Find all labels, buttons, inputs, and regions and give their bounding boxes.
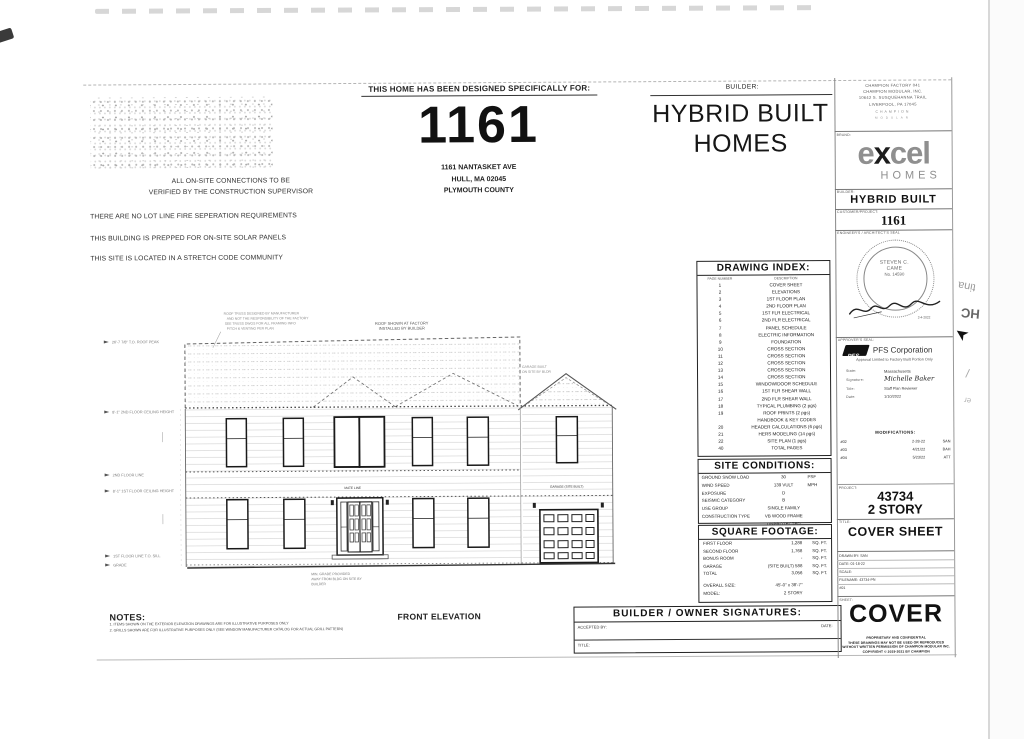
garage-door — [533, 502, 604, 562]
roof-note: ROOF SHOWN AT FACTORY INSTALLED BY BUILD… — [375, 321, 429, 331]
builder-label: BUILDER: — [653, 83, 831, 91]
filename-label: FILENAME: — [839, 578, 858, 582]
dim-label: 8'-1" 2ND FLOOR CEILING HEIGHT — [112, 410, 175, 414]
drawn-by-value: SAN — [860, 554, 867, 558]
tb-date-label: DATE: — [839, 562, 849, 566]
porch-light-right — [386, 500, 389, 505]
site-note-1: ALL ON-SITE CONNECTIONS TO BE — [91, 177, 371, 186]
porch-light-left — [331, 500, 334, 505]
logo-excel-text: excel — [857, 135, 930, 170]
garage-gable — [524, 377, 610, 406]
project-model: 2 STORY — [837, 501, 954, 517]
drawing-index-title: DRAWING INDEX: — [697, 261, 829, 276]
square-footage-title: SQUARE FOOTAGE: — [699, 525, 831, 540]
mod-date: 5/23/22 — [865, 453, 926, 461]
bleed-glyph-2: HC — [960, 305, 980, 322]
square-footage-rows: FIRST FLOOR 1,288 SQ. FT. SECOND FLOOR 1… — [699, 539, 831, 578]
garage-note: GARAGE BUILT ON SITE BY BLDR — [522, 365, 552, 374]
dim-label: 26'-7 7/8" T.O. ROOF PEAK — [112, 340, 160, 344]
mod-id: #02 — [840, 438, 864, 446]
approver-signature: Michelle Baker — [884, 374, 934, 382]
site-note-5: THIS SITE IS LOCATED IN A STRETCH CODE C… — [90, 254, 283, 262]
sheet-name: COVER — [837, 599, 954, 629]
roof-texture — [185, 340, 520, 408]
modifications-rows: #02 2-28-22 SAN #03 4/21/22 BAH #04 5/23… — [840, 437, 950, 462]
garage-light-left — [533, 503, 536, 508]
builder-name-line2: HOMES — [641, 128, 841, 159]
filename-row: FILENAME: 43734-PN — [839, 578, 875, 582]
dim-label: 2ND FLOOR LINE — [113, 473, 145, 477]
pfs-note: Approval Limited to Factory Built Portio… — [836, 357, 953, 362]
approver-title: Staff Plan Reviewer — [884, 387, 917, 391]
modifications-header: MODIFICATIONS: — [860, 429, 930, 434]
logo-homes-text: HOMES — [839, 169, 949, 182]
mod-id: #03 — [840, 446, 864, 454]
roof-annotation-line: PITCH & VENTING PER PLAN — [227, 326, 275, 330]
site-note-2: VERIFIED BY THE CONSTRUCTION SUPERVISOR — [91, 188, 371, 197]
tb-date-value: 01-18-22 — [851, 562, 865, 566]
drawing-index-row: 40 TOTAL PAGES — [698, 444, 830, 452]
index-row-number: 40 — [698, 445, 743, 452]
roof-note-line: INSTALLED BY BUILDER — [379, 326, 425, 331]
entry-door — [331, 498, 389, 559]
engineer-seal-label: ENGINEER'S / ARCHITECT'S SEAL — [837, 231, 900, 235]
signatures-title: BUILDER / OWNER SIGNATURES: — [574, 606, 840, 623]
drawn-by-row: DRAWN BY: SAN — [839, 554, 867, 558]
proprietary-notice: PROPRIETARY AND CONFIDENTIALTHESE DRAWIN… — [840, 635, 953, 655]
signatures-box: BUILDER / OWNER SIGNATURES: ACCEPTED BY:… — [573, 605, 841, 654]
site-note-3: THERE ARE NO LOT LINE FIRE SEPERATION RE… — [90, 212, 297, 220]
model-value: 2 STORY — [750, 589, 802, 597]
notes-items: 1. ITEMS SHOWN ON THE EXTERIOR ELEVATION… — [110, 620, 510, 634]
model-row: MODEL: 2 STORY — [699, 589, 831, 597]
builder-name-line1: HYBRID BUILT — [640, 98, 840, 129]
factory-brand-modular: MODULAR — [836, 115, 949, 120]
elevation-caption: FRONT ELEVATION — [397, 611, 481, 622]
condition-unit: PSF — [807, 473, 827, 481]
builder-name: HYBRID BUILT HOMES — [640, 98, 840, 159]
area-value: 3,056 — [750, 570, 802, 578]
project-number-large: 1161 — [378, 97, 578, 154]
mod-initials: SAN — [925, 437, 950, 445]
builder-underline — [650, 94, 832, 97]
dim-label: 1ST FLOOR LINE T.O. SILL — [113, 554, 160, 558]
sheet-bottom-border — [97, 654, 957, 660]
title-block-right-border — [951, 77, 956, 657]
drawing-sheet: ALL ON-SITE CONNECTIONS TO BE VERIFIED B… — [0, 0, 1024, 739]
excel-homes-logo: excel HOMES — [839, 136, 949, 182]
seal-date: 2-4-2022 — [918, 315, 931, 319]
sheet-title-label: TITLE: — [839, 520, 851, 524]
grade-note: MIN. GRADE PROVIDED AWAY FROM BLDG ON SI… — [311, 572, 362, 586]
area-label: TOTAL — [703, 570, 750, 578]
garage-section-label: GARAGE (SITE BUILT) — [550, 485, 583, 489]
condition-unit — [808, 504, 828, 512]
site-conditions-box: SITE CONDITIONS: GROUND SNOW LOAD 30 PSF… — [698, 458, 832, 524]
pfs-logo: PFS — [842, 345, 870, 356]
area-unit: SQ. FT. — [802, 569, 827, 577]
grade-note-line: MIN. GRADE PROVIDED — [311, 572, 350, 576]
drawing-index-rows: 1 COVER SHEET 2 ELEVATIONS 3 1ST FLOOR P… — [697, 281, 830, 452]
area-unit: SQ. FT. — [802, 562, 827, 570]
drawn-by-label: DRAWN BY: — [839, 554, 859, 558]
roof-annotation-line: SEE TRUSS DWGS FOR ALL FRAMING INFO — [225, 321, 296, 325]
signature-title-label: TITLE: — [578, 643, 590, 648]
condition-unit — [808, 496, 828, 504]
site-conditions-rows: GROUND SNOW LOAD 30 PSF WIND SPEED 139 V… — [699, 473, 831, 528]
garage-note-line: ON SITE BY BLDR — [522, 370, 552, 374]
state-value: Massachusetts — [884, 369, 911, 374]
model-label: MODEL: — [703, 589, 750, 597]
scanned-cover-sheet: ALL ON-SITE CONNECTIONS TO BE VERIFIED B… — [0, 0, 1024, 739]
sheet-title: COVER SHEET — [837, 524, 954, 539]
factory-info-line: LIVERPOOL, PA 17045 — [836, 101, 949, 108]
rev-row: #01 — [839, 586, 845, 590]
project-address: 1161 NANTASKET AVEHULL, MA 02045PLYMOUTH… — [379, 162, 579, 198]
square-footage-box: SQUARE FOOTAGE: FIRST FLOOR 1,288 SQ. FT… — [698, 524, 832, 603]
signature-date-label: DATE: — [821, 623, 833, 628]
area-unit: SQ. FT. — [802, 547, 827, 555]
front-elevation-drawing: ROOF TRUSS DESIGNED BY MANUFACTURER AND … — [100, 299, 682, 603]
mod-initials: BAH — [925, 445, 950, 453]
grade-note-line: BUILDER — [311, 582, 326, 586]
state-label: State: — [846, 369, 856, 373]
factory-info: CHAMPION FACTORY 041CHAMPION MODULAR, IN… — [836, 82, 949, 108]
factory-brand-champion: CHAMPION — [836, 109, 949, 114]
garage-note-line: GARAGE BUILT — [522, 365, 547, 369]
area-unit: SQ. FT. — [802, 539, 827, 547]
site-note-4: THIS BUILDING IS PREPPED FOR ON-SITE SOL… — [90, 234, 286, 242]
area-unit: SQ. FT. — [802, 554, 827, 562]
dim-label: GRADE — [113, 563, 127, 567]
approver-signature-label: Signature: — [846, 378, 864, 382]
filename-value: 43734-PN — [859, 578, 875, 582]
approver-date: 1/10/2022 — [884, 395, 901, 399]
seal-number: No. 14590 — [859, 271, 929, 276]
roof-annotation-line: ROOF TRUSS DESIGNED BY MANUFACTURER — [224, 311, 300, 315]
square-footage-row: TOTAL 3,056 SQ. FT. — [699, 569, 831, 577]
engineer-seal-text: STEVEN C. CAME No. 14590 — [859, 259, 929, 276]
scan-noise-blob — [90, 96, 272, 170]
mate-line-label: MATE LINE — [344, 486, 361, 490]
garage-light-right — [601, 502, 604, 507]
customer-project-value: 1161 — [835, 212, 952, 229]
titleblock-builder-value: HYBRID BUILT — [835, 193, 952, 206]
scale-row: SCALE: — [839, 570, 852, 574]
project-address-line: PLYMOUTH COUNTY — [379, 185, 579, 198]
roof-annotation-line: AND NOT THE RESPONSIBILITY OF THE FACTOR… — [227, 316, 310, 321]
site-conditions-title: SITE CONDITIONS: — [699, 459, 831, 474]
mod-id: #04 — [841, 454, 865, 462]
dimension-labels: 26'-7 7/8" T.O. ROOF PEAK 8'-1" 2ND FLOO… — [104, 340, 181, 567]
approver-date-label: Date: — [846, 395, 855, 399]
page-edge-shade — [990, 0, 1024, 739]
accepted-by-label: ACCEPTED BY: — [578, 624, 607, 629]
proprietary-line: COPYRIGHT © 2019-2021 BY CHAMPION — [840, 649, 953, 654]
approver-title-label: Title: — [846, 387, 855, 391]
scale-label: SCALE: — [839, 570, 852, 574]
pfs-company: PFS Corporation — [873, 345, 933, 354]
tb-date-row: DATE: 01-18-22 — [839, 562, 865, 566]
drawing-index-box: DRAWING INDEX: PAGE NUMBER DESCRIPTION 1… — [696, 260, 831, 457]
index-row-description: TOTAL PAGES — [743, 444, 830, 452]
condition-unit: MPH — [808, 481, 828, 489]
approver-seal-label: APPROVER'S SEAL: — [838, 338, 875, 342]
modification-row: #04 5/23/22 ATT — [841, 453, 951, 462]
grade-note-line: AWAY FROM BLDG ON SITE BY — [311, 577, 362, 581]
designed-for-heading: THIS HOME HAS BEEN DESIGNED SPECIFICALLY… — [361, 83, 597, 96]
dim-label: 8'-1" 1ST FLOOR CEILING HEIGHT — [113, 489, 175, 493]
mod-initials: ATT — [925, 453, 950, 461]
condition-unit — [808, 489, 828, 497]
